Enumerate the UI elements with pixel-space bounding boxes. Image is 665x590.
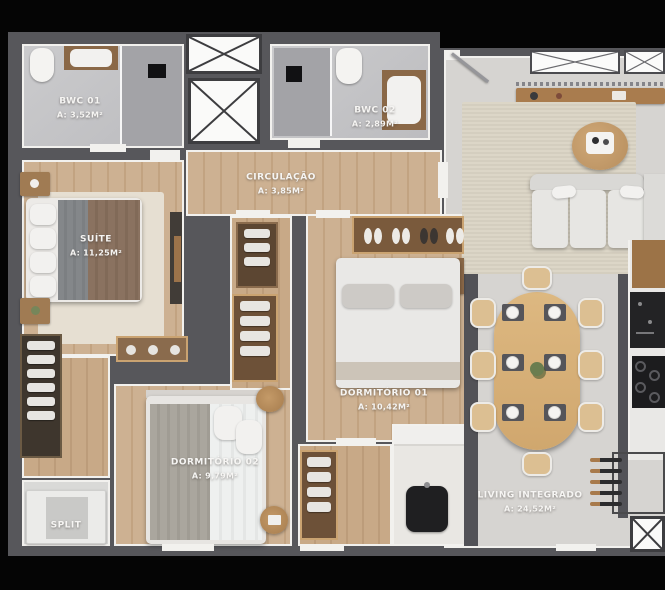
door-bottom-3 (556, 544, 596, 551)
shaft-box-3 (630, 516, 665, 552)
room-area: A: 3,85M² (246, 185, 316, 197)
plate (506, 356, 519, 369)
room-area: A: 2,89M² (352, 118, 398, 130)
dining-chair (522, 452, 552, 476)
room-area: A: 11,25M² (70, 247, 122, 259)
split-condenser (26, 490, 106, 544)
skewer (590, 480, 622, 484)
room-area: A: 10,42M² (340, 401, 428, 413)
room-label-circulacao: CIRCULAÇÃO A: 3,85M² (246, 171, 316, 197)
hanging-clothes (240, 346, 270, 356)
plate (548, 306, 561, 319)
shower-fixture (148, 64, 166, 78)
door-bwc01 (90, 144, 126, 152)
shoes (392, 228, 400, 244)
nightstand (20, 298, 50, 324)
bed-pillow (342, 284, 394, 308)
sink-basin (70, 49, 112, 67)
hanging-clothes (27, 341, 55, 350)
hanging-clothes (307, 472, 331, 482)
door-dorm01 (316, 210, 350, 218)
sofa-pillow (620, 185, 645, 199)
pouf-stool (256, 386, 284, 412)
hanging-clothes (244, 229, 270, 238)
burner (649, 370, 660, 381)
bed-pillow (30, 228, 56, 249)
island-sink (406, 486, 448, 532)
skewer (590, 469, 622, 473)
shoes (126, 345, 136, 355)
dorm02-shoe-cabinet (116, 336, 188, 362)
kitchen-prep-counter (630, 292, 665, 348)
room-area: A: 3,52M² (57, 109, 103, 121)
hanging-clothes (27, 397, 55, 406)
side-table (260, 506, 288, 534)
shoes (456, 228, 464, 244)
bed-pillow (30, 204, 56, 225)
sofa-seat-1 (532, 190, 568, 248)
dining-chair (578, 402, 604, 432)
island-divider (394, 444, 464, 446)
dining-chair (578, 298, 604, 328)
shoes (420, 228, 428, 244)
dining-chair (578, 350, 604, 380)
burner (635, 361, 646, 372)
room-label-dorm02: DORMITÓRIO 02 A: 9,79M² (171, 456, 259, 482)
skewer (590, 491, 622, 495)
cooktop (632, 356, 665, 408)
hanging-clothes (240, 331, 270, 341)
walkin-cabinet-top (236, 222, 278, 288)
room-name: CIRCULAÇÃO (246, 171, 316, 185)
shower-glass (330, 48, 332, 136)
hanging-clothes (244, 257, 270, 266)
hanging-clothes (240, 316, 270, 326)
door-hall-living (438, 162, 448, 198)
room-area: A: 9,79M² (171, 470, 259, 482)
suite-wardrobe (20, 334, 62, 458)
hanging-clothes (27, 355, 55, 364)
shoes (374, 228, 382, 244)
hanging-clothes (244, 243, 270, 252)
curtain-track (516, 82, 665, 86)
walkin-cabinet-bottom (232, 294, 278, 382)
dorm01-closet-lower (300, 450, 338, 540)
kitchen-wood-cabinet (632, 240, 665, 288)
lamp (30, 179, 39, 188)
shoes (364, 228, 372, 244)
decor-books (612, 91, 626, 100)
tray (586, 132, 614, 154)
dining-chair (470, 298, 496, 328)
hanging-clothes (307, 487, 331, 497)
tv-shelf (174, 236, 181, 282)
hanging-clothes (240, 301, 270, 311)
bed-pillow (236, 420, 262, 454)
hanging-clothes (27, 411, 55, 420)
plate (548, 356, 561, 369)
door-dorm02 (236, 210, 270, 218)
mug (592, 137, 599, 144)
door-dorm01-lower (336, 438, 376, 446)
toilet (336, 48, 362, 84)
shoes (148, 345, 158, 355)
room-name: DORMITÓRIO 01 (340, 387, 428, 401)
utensil (636, 332, 654, 334)
bed-pillow (30, 252, 56, 273)
burner (635, 382, 646, 393)
dining-chair (522, 266, 552, 290)
room-name: DORMITÓRIO 02 (171, 456, 259, 470)
utensil (648, 320, 652, 324)
utensil (638, 302, 642, 306)
dining-chair (470, 350, 496, 380)
shaft-box-2 (188, 78, 260, 144)
shower-fixture (286, 66, 302, 82)
shower-glass (120, 46, 122, 146)
hanging-clothes (307, 457, 331, 467)
room-name: LIVING INTEGRADO (477, 489, 582, 503)
hanging-clothes (27, 369, 55, 378)
decor-book (268, 515, 281, 525)
shower-bwc02 (274, 48, 330, 136)
room-label-living: LIVING INTEGRADO A: 24,52M² (477, 489, 582, 515)
door-bottom-2 (300, 544, 344, 551)
room-area: A: 24,52M² (477, 503, 582, 515)
toilet (30, 48, 54, 82)
plate (548, 406, 561, 419)
floor-plan: BWC 01 A: 3,52M² BWC 02 A: 2,89M² CIRCUL… (0, 0, 665, 590)
plate (506, 406, 519, 419)
room-name: BWC 01 (57, 95, 103, 109)
burner (649, 392, 660, 403)
vanity (64, 46, 118, 70)
room-label-bwc02: BWC 02 A: 2,89M² (352, 104, 398, 130)
door-suite (150, 150, 180, 160)
shoes (402, 228, 410, 244)
bed-pillow (400, 284, 452, 308)
skewer (590, 502, 622, 506)
decor-item (530, 92, 538, 100)
coffee-table (572, 122, 628, 170)
window-1 (530, 50, 620, 74)
room-label-suite: SUÍTE A: 11,25M² (70, 233, 122, 259)
shoes (170, 345, 180, 355)
hanging-clothes (27, 383, 55, 392)
mug (603, 139, 609, 145)
table-plant (530, 362, 544, 376)
faucet (424, 482, 430, 488)
decor-item (556, 93, 562, 99)
door-bottom-1 (162, 544, 214, 551)
door-bwc02 (288, 140, 320, 148)
room-name: BWC 02 (352, 104, 398, 118)
shoes (430, 228, 438, 244)
dorm01-throw (336, 362, 460, 380)
dining-chair (470, 402, 496, 432)
shower-bwc01 (122, 46, 182, 146)
shaft-box-1 (186, 34, 262, 74)
dorm01-closet-top (352, 216, 464, 254)
room-name: SUÍTE (70, 233, 122, 247)
skewer (590, 458, 622, 462)
room-name: SPLIT (51, 519, 82, 533)
window-2 (624, 50, 665, 74)
bed-pillow (30, 276, 56, 297)
sofa-seat-2 (570, 190, 606, 248)
shoes (446, 228, 454, 244)
nightstand (20, 172, 50, 196)
room-label-split: SPLIT (51, 519, 82, 533)
plate (506, 306, 519, 319)
room-label-dorm01: DORMITÓRIO 01 A: 10,42M² (340, 387, 428, 413)
decor-plant (31, 306, 40, 315)
hanging-clothes (307, 502, 331, 512)
room-label-bwc01: BWC 01 A: 3,52M² (57, 95, 103, 121)
